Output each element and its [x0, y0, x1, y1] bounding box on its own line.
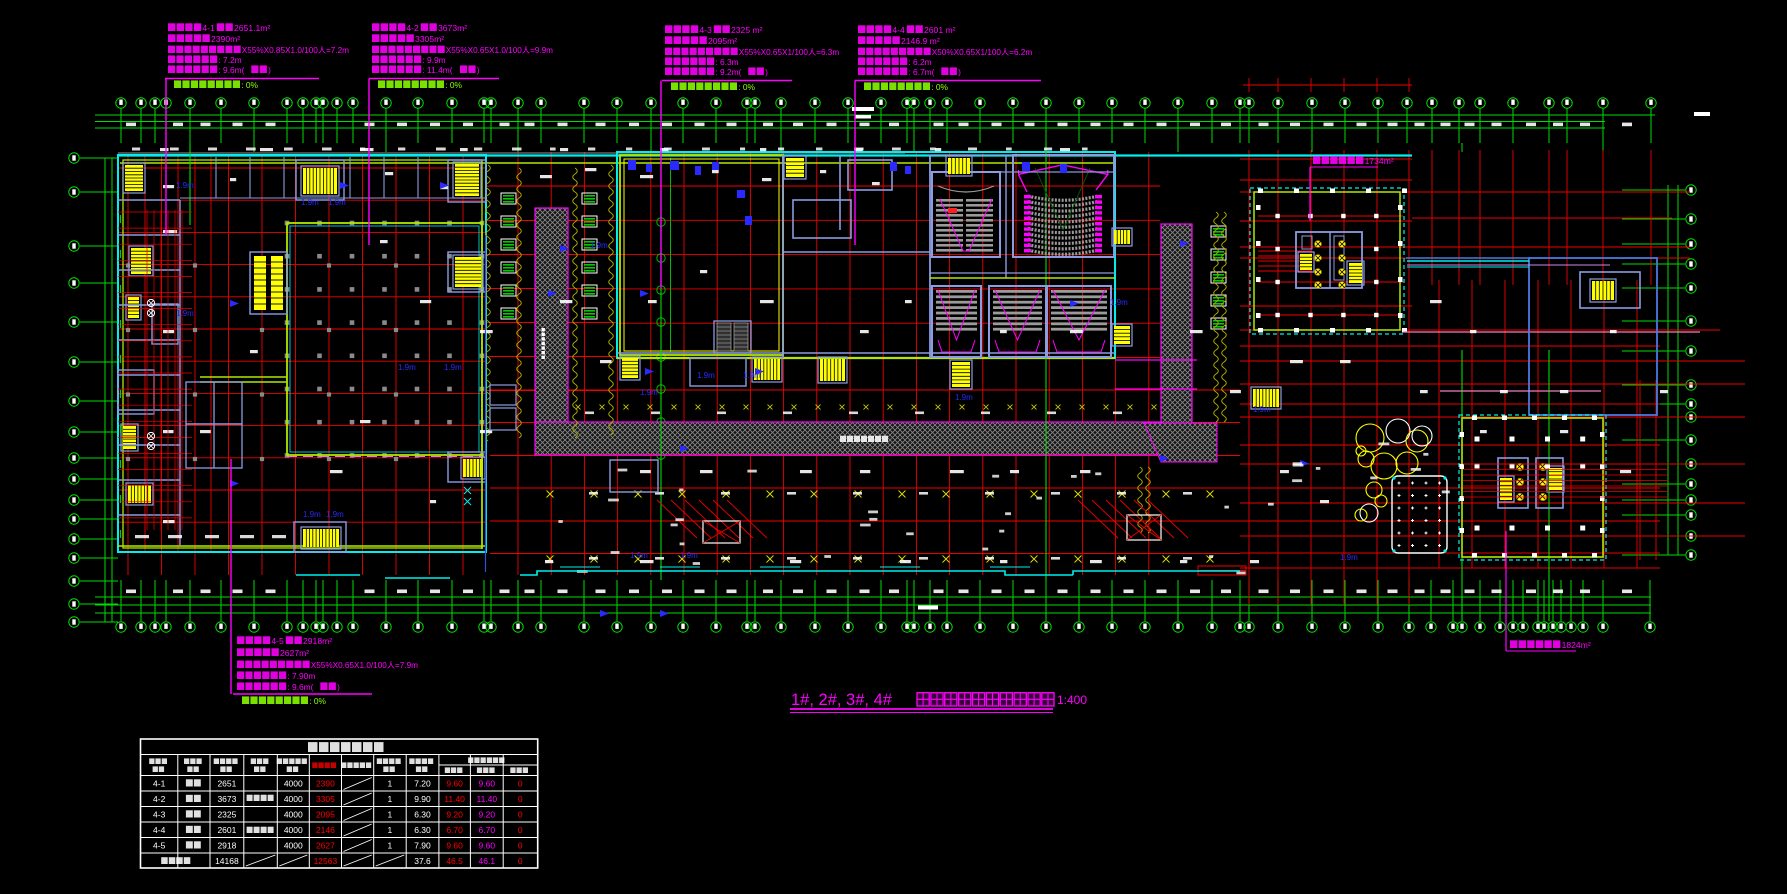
- svg-text:1: 1: [388, 779, 393, 789]
- svg-text:2918: 2918: [217, 841, 236, 851]
- svg-text:1.9m: 1.9m: [697, 371, 715, 380]
- svg-text:46.1: 46.1: [479, 856, 496, 866]
- svg-text:X55%X0.65X1.0/100人=9.9m: X55%X0.65X1.0/100人=9.9m: [446, 46, 553, 55]
- svg-text:X55%X0.65X1.0/100人=7.9m: X55%X0.65X1.0/100人=7.9m: [311, 661, 418, 670]
- svg-text:4-3: 4-3: [699, 25, 712, 35]
- svg-text:4000: 4000: [284, 794, 303, 804]
- svg-text:: 0%: : 0%: [931, 82, 948, 92]
- svg-text:6.70: 6.70: [446, 825, 463, 835]
- svg-text:2146.9 m²: 2146.9 m²: [901, 36, 940, 46]
- svg-text:: 9.6m(: : 9.6m(: [287, 682, 313, 692]
- svg-text:9.20: 9.20: [479, 810, 496, 820]
- svg-text:4-5: 4-5: [271, 636, 284, 646]
- svg-text:1.9m: 1.9m: [955, 393, 973, 402]
- svg-text:4000: 4000: [284, 779, 303, 789]
- svg-text:: 7.90m: : 7.90m: [287, 671, 315, 681]
- svg-text:0: 0: [518, 856, 523, 866]
- svg-text:1.9m: 1.9m: [1340, 553, 1358, 562]
- svg-text:1.9m: 1.9m: [1253, 405, 1271, 414]
- svg-text:2918m²: 2918m²: [303, 636, 332, 646]
- svg-text:2325: 2325: [217, 810, 236, 820]
- svg-text:): ): [337, 682, 340, 692]
- svg-text:): ): [765, 67, 768, 77]
- svg-text:4-3: 4-3: [153, 810, 166, 820]
- svg-text:2651: 2651: [217, 779, 236, 789]
- svg-text:14168: 14168: [215, 856, 239, 866]
- svg-text:9.60: 9.60: [479, 779, 496, 789]
- svg-text:4000: 4000: [284, 841, 303, 851]
- svg-text:9.60: 9.60: [446, 779, 463, 789]
- svg-text:: 9.2m(: : 9.2m(: [715, 67, 741, 77]
- svg-text:: 9.6m(: : 9.6m(: [218, 65, 244, 75]
- svg-text:2325 m²: 2325 m²: [731, 25, 763, 35]
- svg-text:9.60: 9.60: [479, 841, 496, 851]
- svg-text:2601 m²: 2601 m²: [924, 25, 956, 35]
- svg-text:1.9m: 1.9m: [1110, 298, 1128, 307]
- svg-text:X55%X0.85X1.0/100人=7.2m: X55%X0.85X1.0/100人=7.2m: [242, 46, 349, 55]
- svg-text:: 0%: : 0%: [309, 696, 326, 706]
- svg-text:3673: 3673: [217, 794, 236, 804]
- svg-text:: 7.2m: : 7.2m: [218, 55, 241, 65]
- svg-text:1.9m: 1.9m: [328, 198, 346, 207]
- svg-text:2095m²: 2095m²: [708, 36, 737, 46]
- svg-text:0: 0: [518, 779, 523, 789]
- svg-text:0: 0: [518, 794, 523, 804]
- svg-text:1.9m: 1.9m: [680, 551, 698, 560]
- svg-text:2390: 2390: [316, 779, 335, 789]
- svg-text:4000: 4000: [284, 810, 303, 820]
- svg-text:: 0%: : 0%: [445, 80, 462, 90]
- svg-text:1824m²: 1824m²: [1562, 640, 1591, 650]
- svg-text:X50%X0.65X1/100人=6.2m: X50%X0.65X1/100人=6.2m: [932, 48, 1033, 57]
- svg-text:7.90: 7.90: [414, 841, 431, 851]
- svg-text:9.60: 9.60: [446, 841, 463, 851]
- svg-text:7.20: 7.20: [414, 779, 431, 789]
- svg-text:1.9m: 1.9m: [590, 241, 608, 250]
- svg-text:): ): [477, 65, 480, 75]
- svg-text:4-1: 4-1: [153, 779, 166, 789]
- svg-text:1.9m: 1.9m: [398, 363, 416, 372]
- svg-text:4000: 4000: [284, 825, 303, 835]
- svg-text:1#, 2#, 3#, 4#: 1#, 2#, 3#, 4#: [791, 691, 893, 709]
- svg-text:6.30: 6.30: [414, 825, 431, 835]
- svg-text:1.9m: 1.9m: [326, 510, 344, 519]
- svg-text:4-2: 4-2: [153, 794, 166, 804]
- svg-text:X55%X0.65X1/100人=6.3m: X55%X0.65X1/100人=6.3m: [739, 48, 840, 57]
- svg-text:11.40: 11.40: [476, 794, 497, 804]
- svg-text:2146: 2146: [316, 825, 335, 835]
- svg-text:: 11.4m(: : 11.4m(: [422, 65, 452, 75]
- svg-text:1.9m: 1.9m: [444, 363, 462, 372]
- svg-text:1.9m: 1.9m: [301, 198, 319, 207]
- svg-text:): ): [958, 67, 961, 77]
- svg-text:1: 1: [388, 810, 393, 820]
- svg-text:2095: 2095: [316, 810, 335, 820]
- svg-text:37.6: 37.6: [414, 856, 431, 866]
- svg-text:: 9.9m: : 9.9m: [422, 55, 445, 65]
- svg-text:): ): [268, 65, 271, 75]
- svg-text:1.9m: 1.9m: [176, 181, 194, 190]
- svg-text:1:400: 1:400: [1057, 693, 1087, 707]
- svg-text:11.40: 11.40: [444, 794, 465, 804]
- svg-text:4-4: 4-4: [153, 825, 166, 835]
- svg-text:3305m²: 3305m²: [415, 34, 444, 44]
- svg-text:3673m²: 3673m²: [438, 23, 467, 33]
- svg-text:2651.1m²: 2651.1m²: [234, 23, 270, 33]
- svg-text:1.9m: 1.9m: [640, 388, 658, 397]
- svg-text:1.9m: 1.9m: [630, 551, 648, 560]
- svg-text:9.20: 9.20: [446, 810, 463, 820]
- svg-text:12563: 12563: [314, 856, 338, 866]
- svg-text:: 6.2m: : 6.2m: [908, 57, 931, 67]
- svg-text:6.70: 6.70: [479, 825, 496, 835]
- svg-text:: 6.7m(: : 6.7m(: [908, 67, 934, 77]
- svg-text:1: 1: [388, 794, 393, 804]
- svg-text:1.9m: 1.9m: [303, 510, 321, 519]
- svg-text:1: 1: [388, 841, 393, 851]
- svg-text:4-2: 4-2: [406, 23, 419, 33]
- svg-text:0: 0: [518, 841, 523, 851]
- svg-text:2601: 2601: [217, 825, 236, 835]
- svg-text:3305: 3305: [316, 794, 335, 804]
- svg-text:2627: 2627: [316, 841, 335, 851]
- svg-text:6.30: 6.30: [414, 810, 431, 820]
- svg-text:4-4: 4-4: [892, 25, 905, 35]
- svg-text:: 0%: : 0%: [738, 82, 755, 92]
- svg-text:: 6.3m: : 6.3m: [715, 57, 738, 67]
- svg-text:0: 0: [518, 810, 523, 820]
- svg-text:2627m²: 2627m²: [280, 648, 309, 658]
- svg-text:4-5: 4-5: [153, 841, 166, 851]
- svg-text:0: 0: [518, 825, 523, 835]
- svg-text:46.5: 46.5: [446, 856, 463, 866]
- svg-text:: 0%: : 0%: [241, 80, 258, 90]
- svg-text:9.90: 9.90: [414, 794, 431, 804]
- svg-text:2390m²: 2390m²: [211, 34, 240, 44]
- svg-text:1: 1: [388, 825, 393, 835]
- svg-text:1.9m: 1.9m: [176, 309, 194, 318]
- svg-text:4-1: 4-1: [202, 23, 215, 33]
- svg-text:1734m²: 1734m²: [1365, 156, 1394, 166]
